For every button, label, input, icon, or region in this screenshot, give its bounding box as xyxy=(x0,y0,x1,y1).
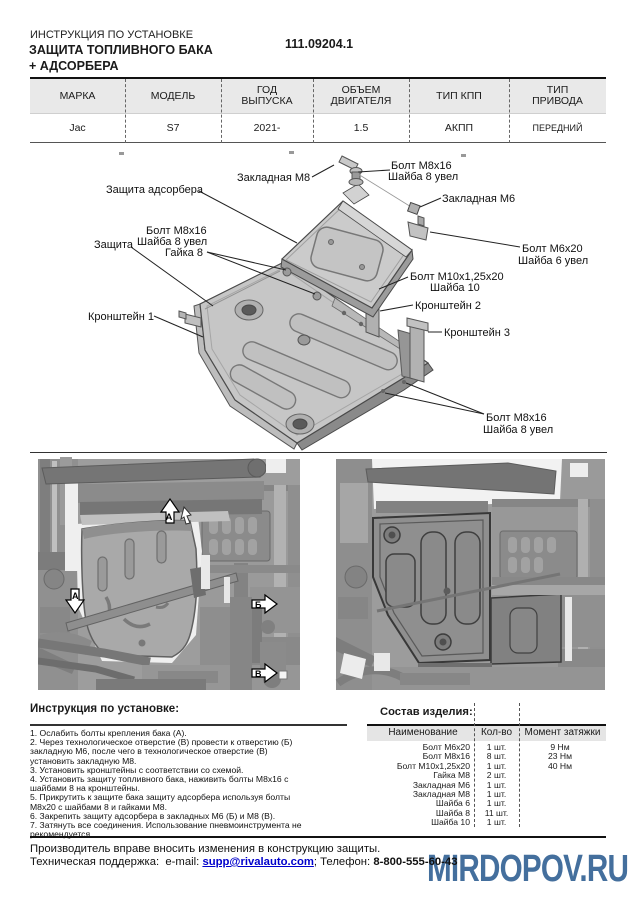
svg-text:Шайба 8 увел: Шайба 8 увел xyxy=(483,424,553,436)
svg-text:Защита адсорбера: Защита адсорбера xyxy=(106,184,204,196)
svg-text:В: В xyxy=(255,669,262,679)
svg-text:Кронштейн 1: Кронштейн 1 xyxy=(88,311,154,323)
svg-text:Б: Б xyxy=(255,600,262,610)
svg-text:Болт М6х20: Болт М6х20 xyxy=(522,243,583,255)
svg-text:Шайба 10: Шайба 10 xyxy=(430,282,480,294)
svg-text:Закладная М6: Закладная М6 xyxy=(442,193,515,205)
svg-text:Закладная М8: Закладная М8 xyxy=(237,172,310,184)
svg-text:Шайба 8 увел: Шайба 8 увел xyxy=(388,171,458,183)
svg-text:Шайба 6 увел: Шайба 6 увел xyxy=(518,255,588,267)
svg-text:Кронштейн 2: Кронштейн 2 xyxy=(415,300,481,312)
svg-text:Защита: Защита xyxy=(94,239,134,251)
svg-text:Гайка 8: Гайка 8 xyxy=(165,247,203,259)
svg-text:А: А xyxy=(72,591,79,601)
svg-text:Болт М8х16: Болт М8х16 xyxy=(486,412,547,424)
svg-text:А: А xyxy=(166,512,173,523)
svg-text:Кронштейн 3: Кронштейн 3 xyxy=(444,327,510,339)
